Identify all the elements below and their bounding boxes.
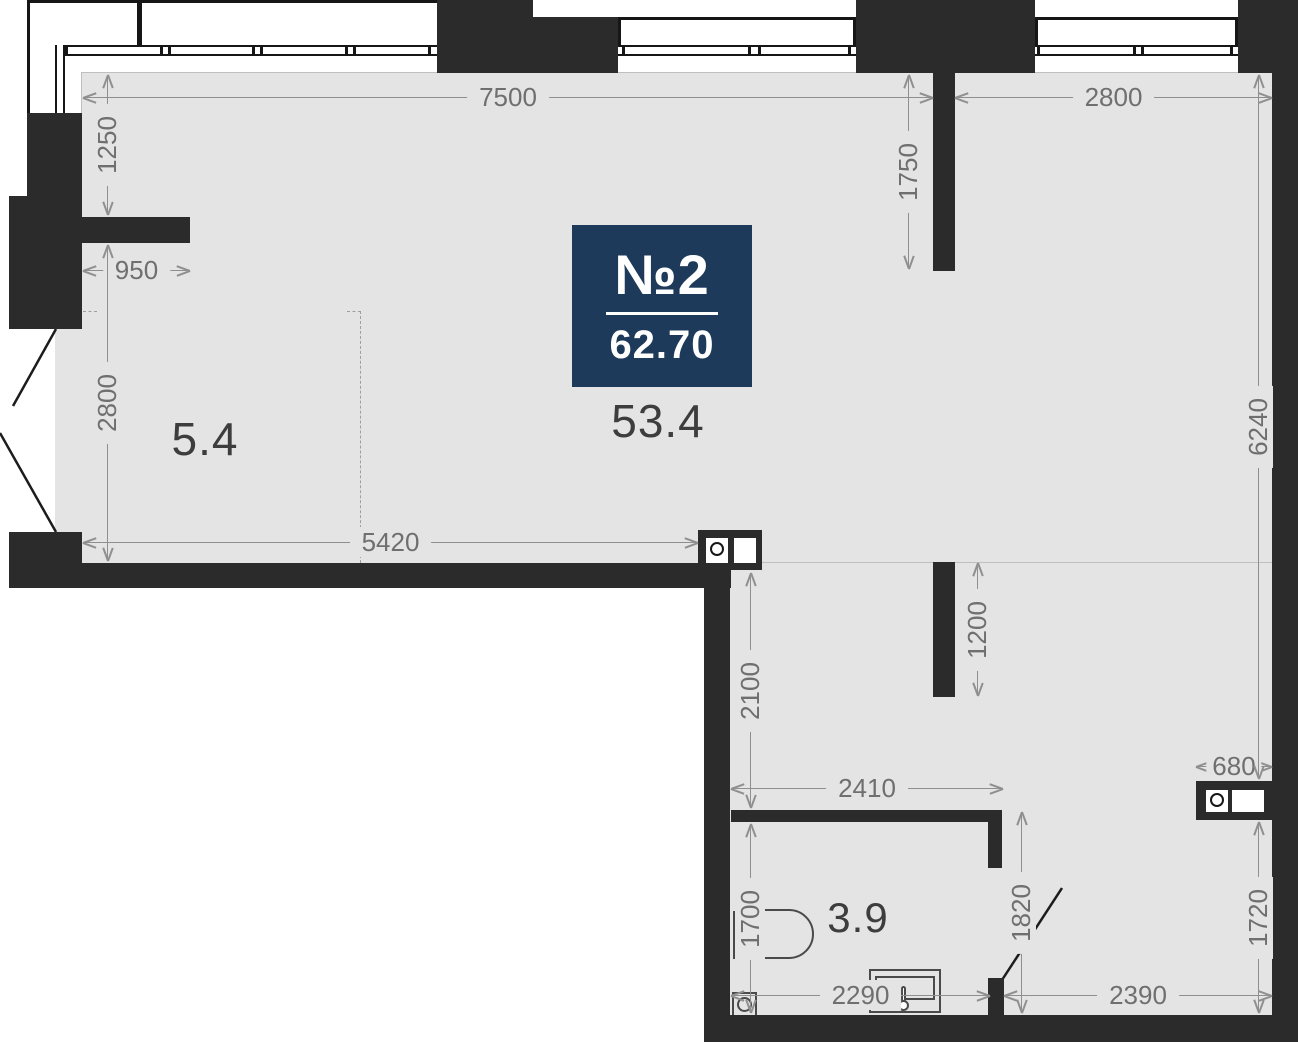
balcony-door-leaf-upper: [13, 329, 56, 406]
unit-badge: №2 62.70: [572, 225, 752, 387]
wall-partition-free: [933, 562, 955, 697]
window-divider: [1133, 47, 1136, 54]
window-divider: [848, 47, 851, 54]
shaft-circle-icon: [1210, 793, 1224, 807]
dimension-label: 2290: [820, 980, 902, 1010]
dimension-label: 1250: [92, 104, 122, 186]
glazing-divider: [345, 47, 348, 54]
glazing-divider: [160, 47, 163, 54]
dimension-partition: 1200: [977, 563, 978, 696]
dimension-right-lower: 1720: [1258, 822, 1259, 1013]
glazing-divider: [260, 47, 263, 54]
room-area-bathroom: 3.9: [808, 894, 908, 942]
dimension-bath-door: 1820: [1021, 812, 1022, 1013]
dimension-left-upper: 1250: [107, 75, 108, 215]
glazing-divider: [252, 47, 255, 54]
window: [1035, 17, 1238, 73]
window-frame: [1035, 17, 1238, 45]
dimension-label: 2390: [1097, 980, 1179, 1010]
zone-dash-tick-right: [347, 311, 361, 312]
window-frame: [618, 17, 856, 45]
floor-balcony-door-strip: [55, 329, 82, 532]
glazing-divider: [428, 47, 431, 54]
wall-right: [1272, 73, 1298, 1042]
zone-dashed-line: [360, 311, 361, 563]
dimension-label: 1750: [893, 131, 923, 213]
dimension-left-lower: 2800: [107, 245, 108, 561]
wall-top-right-corner: [1238, 0, 1298, 73]
dimension-bath-width: 2290: [731, 995, 990, 996]
dimension-label: 1720: [1243, 877, 1273, 959]
dimension-right-upper: 6240: [1258, 75, 1259, 779]
dimension-label: 1700: [735, 878, 765, 960]
wall-top-c: [856, 0, 1035, 73]
dimension-label: 6240: [1243, 386, 1273, 468]
wall-bottom: [704, 1015, 1298, 1042]
shaft-box-right: [1196, 781, 1272, 820]
toilet-bowl: [761, 909, 814, 959]
room-area-main: 53.4: [583, 394, 733, 448]
shaft-box-hall: [698, 530, 762, 570]
wall-top-a: [437, 0, 533, 73]
dimension-pier-width: 950: [83, 270, 190, 271]
dimension-top-right-width: 2800: [955, 97, 1272, 98]
dimension-label: 2800: [92, 362, 122, 444]
wall-top-b: [533, 17, 618, 73]
window-divider: [1141, 47, 1144, 54]
wall-hall-left: [704, 563, 730, 1042]
zone-dash-tick-left: [83, 311, 97, 312]
window-sill-band: [1035, 45, 1238, 56]
window-divider: [1037, 47, 1040, 54]
wall-bathroom-door-jamb: [988, 978, 1004, 1015]
wall-room-bottom: [9, 563, 731, 588]
window-divider: [748, 47, 751, 54]
unit-total-area: 62.70: [609, 325, 714, 365]
wall-left-lower-block: [9, 532, 82, 565]
dimension-label: 7500: [467, 82, 549, 112]
balcony-frame-bar: [137, 0, 142, 45]
balcony-outline-left: [27, 0, 30, 113]
dimension-hall-width: 2410: [731, 788, 1003, 789]
window-divider: [622, 47, 625, 54]
shaft-cell: [734, 538, 756, 563]
dimension-hall-upper: 2100: [750, 573, 751, 808]
dimension-label: 5420: [350, 527, 432, 557]
dimension-label: 1820: [1006, 872, 1036, 954]
window: [618, 17, 856, 73]
glazing-divider: [168, 47, 171, 54]
dimension-label: 1200: [962, 589, 992, 671]
badge-divider: [606, 312, 718, 315]
dimension-main-width: 5420: [83, 542, 698, 543]
dimension-label: 950: [103, 255, 170, 285]
wall-pier-stub: [82, 217, 190, 243]
dimension-bath-height: 1700: [750, 824, 751, 1013]
glazing-divider: [353, 47, 356, 54]
shaft-circle-icon: [710, 542, 724, 556]
wall-stub-top: [933, 73, 955, 271]
balcony-glazing-side: [55, 45, 65, 113]
balcony-outline-top: [27, 0, 437, 3]
room-area-balcony: 5.4: [150, 412, 260, 466]
wall-bathroom-door-stub: [988, 810, 1002, 868]
dimension-lower-width: 2390: [1004, 995, 1272, 996]
unit-number: №2: [614, 247, 710, 303]
dimension-top-width: 7500: [83, 97, 933, 98]
window-divider: [758, 47, 761, 54]
wall-left-pier-block: [9, 196, 82, 329]
wall-left-upper: [27, 113, 82, 196]
window-sill-band: [618, 45, 856, 56]
dimension-label: 2800: [1073, 82, 1155, 112]
balcony-glazing-band: [55, 45, 437, 56]
dimension-label: 2100: [735, 650, 765, 732]
balcony-door-leaf-lower: [0, 433, 56, 532]
wall-bathroom-top: [731, 810, 988, 822]
glazing-divider: [65, 47, 68, 54]
shaft-cell: [1232, 790, 1264, 812]
dimension-top-stub: 1750: [908, 75, 909, 269]
dimension-shaft-width: 680: [1196, 766, 1272, 767]
floor-plan: №2 62.70 53.4 5.4 3.9 7500 2800 950 5420…: [0, 0, 1298, 1042]
dimension-label: 2410: [826, 773, 908, 803]
window-divider: [1230, 47, 1233, 54]
